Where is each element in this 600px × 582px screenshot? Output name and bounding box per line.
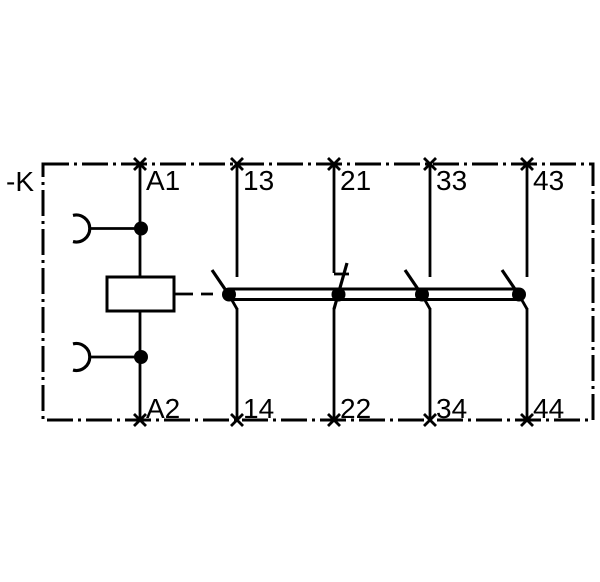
contactor-schematic: -K A1 A2 13 14 xyxy=(0,0,600,582)
plug-connection-icon-upper xyxy=(73,215,90,242)
terminal-label-21: 21 xyxy=(340,165,371,196)
no-contact-13-14: 13 14 xyxy=(212,158,274,426)
terminal-label-a2: A2 xyxy=(146,393,180,424)
terminal-label-34: 34 xyxy=(436,393,467,424)
contact-blade-21 xyxy=(334,263,347,309)
junction-dot-lower xyxy=(134,350,148,364)
terminal-label-43: 43 xyxy=(533,165,564,196)
terminal-label-13: 13 xyxy=(243,165,274,196)
pivot-dot-43 xyxy=(512,288,526,302)
terminal-label-22: 22 xyxy=(340,393,371,424)
device-label: -K xyxy=(6,166,34,197)
junction-dot-upper xyxy=(134,222,148,236)
terminal-label-44: 44 xyxy=(533,393,564,424)
terminal-label-33: 33 xyxy=(436,165,467,196)
pivot-dot-33 xyxy=(415,288,429,302)
no-contact-43-44: 43 44 xyxy=(502,158,564,426)
no-contact-33-34: 33 34 xyxy=(405,158,467,426)
nc-contact-21-22: 21 22 xyxy=(328,158,371,426)
pivot-dot-13 xyxy=(222,288,236,302)
terminal-label-14: 14 xyxy=(243,393,274,424)
enclosure-border xyxy=(43,164,593,420)
terminal-label-a1: A1 xyxy=(146,165,180,196)
coil-branch: A1 A2 xyxy=(73,158,180,426)
schematic-canvas: -K A1 A2 13 14 xyxy=(0,0,600,582)
plug-connection-icon-lower xyxy=(73,344,90,371)
pivot-dot-21 xyxy=(332,288,346,302)
mechanical-link-bar xyxy=(229,289,519,300)
coil-symbol xyxy=(107,277,174,311)
